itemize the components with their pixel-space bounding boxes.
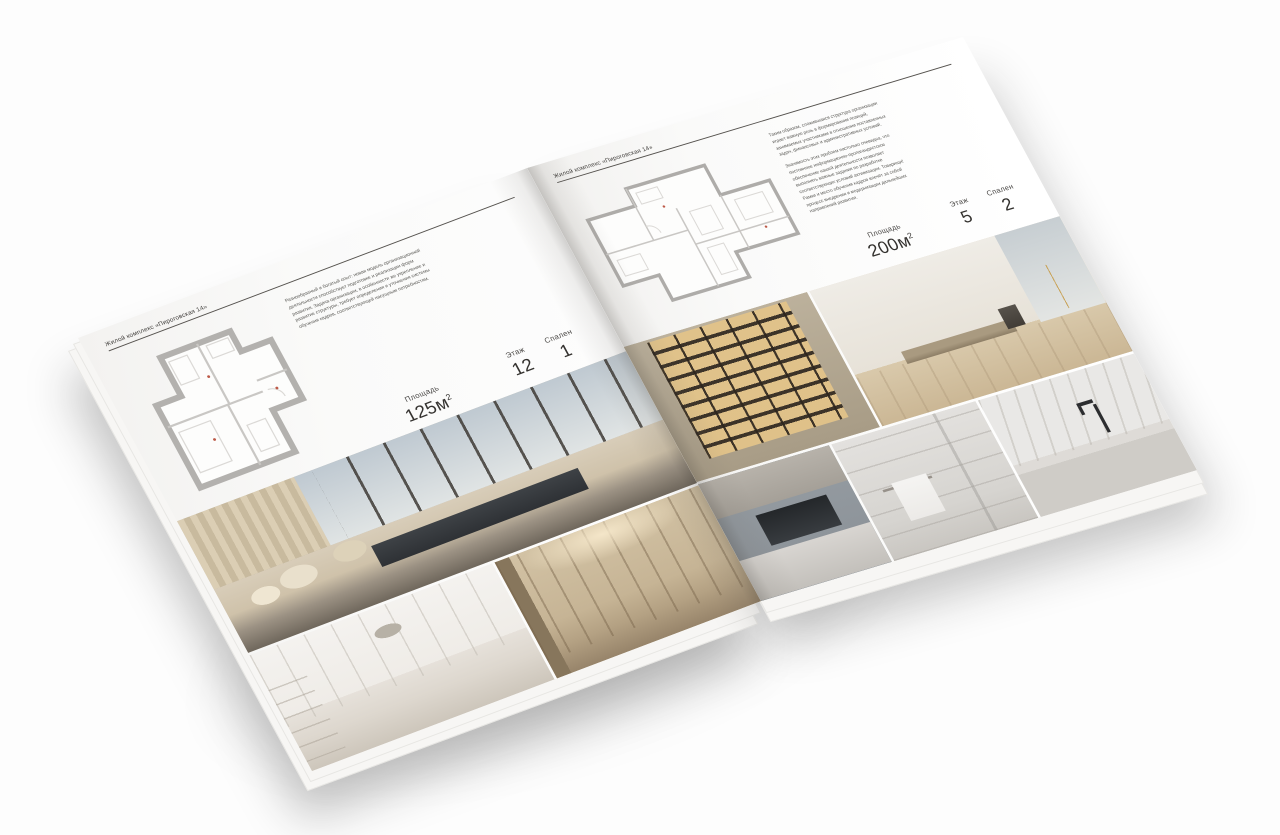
stat-bedrooms-value: 2 [999, 195, 1018, 215]
stat-floor-left: Этаж 12 [503, 345, 538, 381]
stat-floor-value: 5 [958, 207, 977, 227]
stat-bedrooms-label: Спален [985, 182, 1015, 197]
stat-bedrooms-left: Спален 1 [543, 327, 585, 365]
brochure-mockup-scene: Жилой комплекс «Пироговская 14» [0, 0, 1280, 835]
stat-bedrooms-right: Спален 2 [985, 182, 1026, 218]
stat-bedrooms-value: 1 [557, 341, 576, 362]
stat-floor-right: Этаж 5 [948, 196, 981, 230]
stat-floor-value: 12 [509, 355, 538, 380]
